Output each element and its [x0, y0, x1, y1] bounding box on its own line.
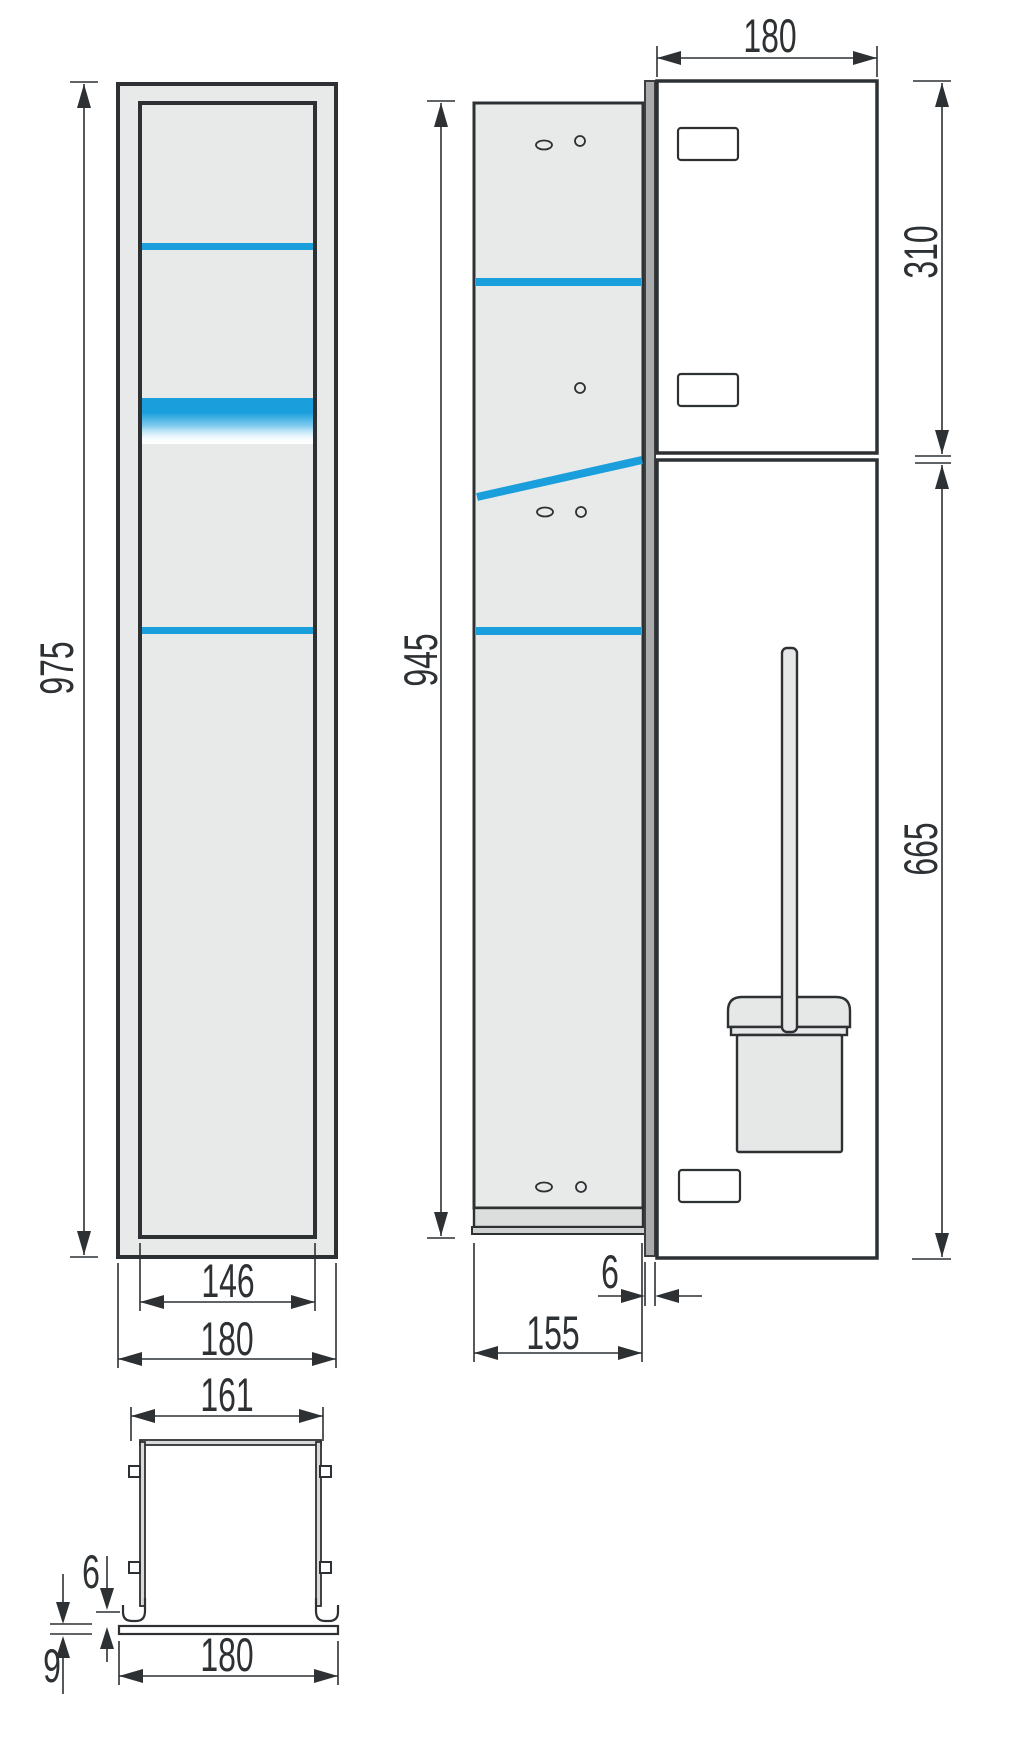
- dim-section-outer-width: 180: [119, 1629, 338, 1685]
- dim-label-section-lip: 6: [82, 1546, 100, 1599]
- plan-section-view: 161 6 9 180: [43, 1369, 338, 1694]
- technical-drawing: 975 146 180: [0, 0, 1022, 1752]
- dim-label-upper-door-height: 310: [895, 225, 948, 278]
- side-carcass: [474, 103, 643, 1208]
- handle-cutout-upper-1: [678, 128, 738, 160]
- side-base-strip: [472, 1227, 646, 1234]
- side-plinth: [474, 1208, 643, 1227]
- handle-cutout-lower: [679, 1170, 740, 1202]
- dim-label-side-depth: 155: [526, 1307, 579, 1360]
- door-front-view: 180 310 665: [657, 10, 951, 1259]
- section-clip-left-2: [129, 1562, 140, 1573]
- dim-door-width: 180: [657, 10, 877, 77]
- front-frame-outer: [118, 84, 336, 1257]
- dim-side-height: 945: [395, 101, 455, 1238]
- dim-label-front-outer-width: 180: [200, 1313, 253, 1366]
- section-clip-right-1: [320, 1466, 331, 1477]
- side-shelf-line-top: [476, 278, 641, 286]
- section-clip-left-1: [129, 1466, 140, 1477]
- front-shelf-line-top: [142, 243, 313, 250]
- dim-label-front-inner-width: 146: [201, 1255, 254, 1308]
- front-shelf-glow-band: [142, 398, 313, 444]
- dim-front-height: 975: [31, 82, 98, 1257]
- dim-lower-door-height: 665: [895, 465, 951, 1259]
- dim-label-section-plate: 9: [43, 1640, 61, 1693]
- brush-handle: [782, 648, 797, 1032]
- dim-section-inner-width: 161: [131, 1369, 323, 1441]
- brush-holder-cup: [737, 1035, 842, 1152]
- side-shelf-line-bottom: [476, 627, 641, 635]
- dim-label-section-outer-width: 180: [200, 1629, 253, 1682]
- dim-label-side-height: 945: [395, 633, 448, 686]
- dim-label-lower-door-height: 665: [895, 822, 948, 875]
- dim-upper-door-height: 310: [895, 81, 951, 463]
- dim-label-section-inner-width: 161: [200, 1369, 253, 1422]
- section-clip-right-2: [320, 1562, 331, 1573]
- dim-label-door-thickness: 6: [601, 1246, 619, 1299]
- dim-label-door-width: 180: [743, 10, 796, 63]
- handle-cutout-upper-2: [678, 374, 738, 406]
- dim-label-front-height: 975: [31, 641, 84, 694]
- front-view: 975 146 180: [31, 82, 336, 1368]
- section-back-wall: [140, 1440, 321, 1445]
- dim-section-lip: 6: [82, 1546, 120, 1662]
- front-shelf-line-bottom: [142, 627, 313, 634]
- door-edge-profile: [645, 81, 655, 1256]
